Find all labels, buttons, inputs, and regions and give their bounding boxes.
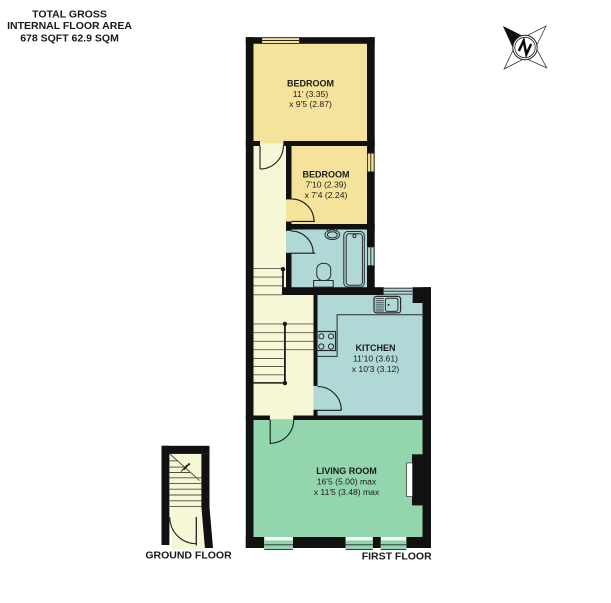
svg-text:11'10 (3.61): 11'10 (3.61) [353,354,398,364]
svg-text:x 11'5 (3.48) max: x 11'5 (3.48) max [314,487,380,497]
svg-text:INTERNAL FLOOR AREA: INTERNAL FLOOR AREA [7,20,132,32]
svg-text:KITCHEN: KITCHEN [356,343,396,353]
svg-text:x 7'4 (2.24): x 7'4 (2.24) [305,190,348,200]
svg-text:16'5 (5.00) max: 16'5 (5.00) max [317,477,377,487]
svg-text:x 10'3 (3.12): x 10'3 (3.12) [352,364,400,374]
svg-text:7'10 (2.39): 7'10 (2.39) [306,180,347,190]
svg-text:BEDROOM: BEDROOM [303,169,350,179]
svg-text:GROUND FLOOR: GROUND FLOOR [145,550,232,562]
svg-text:LIVING ROOM: LIVING ROOM [316,466,377,476]
svg-text:FIRST FLOOR: FIRST FLOOR [362,551,432,563]
svg-text:x 9'5 (2.87): x 9'5 (2.87) [289,99,332,109]
svg-text:11' (3.35): 11' (3.35) [293,89,329,99]
svg-text:678 SQFT 62.9 SQM: 678 SQFT 62.9 SQM [20,32,119,44]
svg-text:TOTAL GROSS: TOTAL GROSS [32,9,107,21]
svg-text:BEDROOM: BEDROOM [287,78,334,88]
